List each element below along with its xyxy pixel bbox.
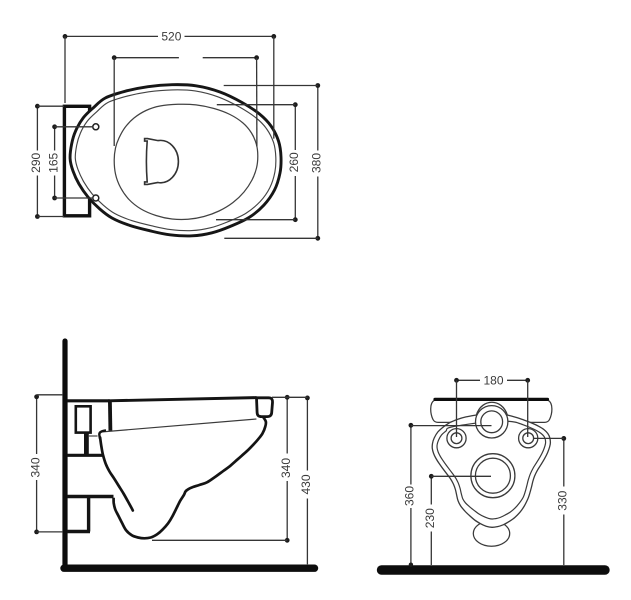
svg-text:230: 230: [423, 508, 437, 528]
svg-text:340: 340: [279, 458, 293, 478]
svg-text:290: 290: [29, 152, 43, 172]
svg-text:430: 430: [299, 474, 313, 494]
svg-text:340: 340: [28, 457, 42, 477]
svg-text:360: 360: [403, 486, 417, 506]
svg-text:330: 330: [556, 490, 570, 510]
svg-text:180: 180: [483, 374, 503, 388]
svg-text:260: 260: [287, 152, 301, 172]
svg-text:165: 165: [46, 152, 60, 172]
svg-text:380: 380: [310, 153, 324, 173]
svg-text:520: 520: [161, 30, 181, 44]
